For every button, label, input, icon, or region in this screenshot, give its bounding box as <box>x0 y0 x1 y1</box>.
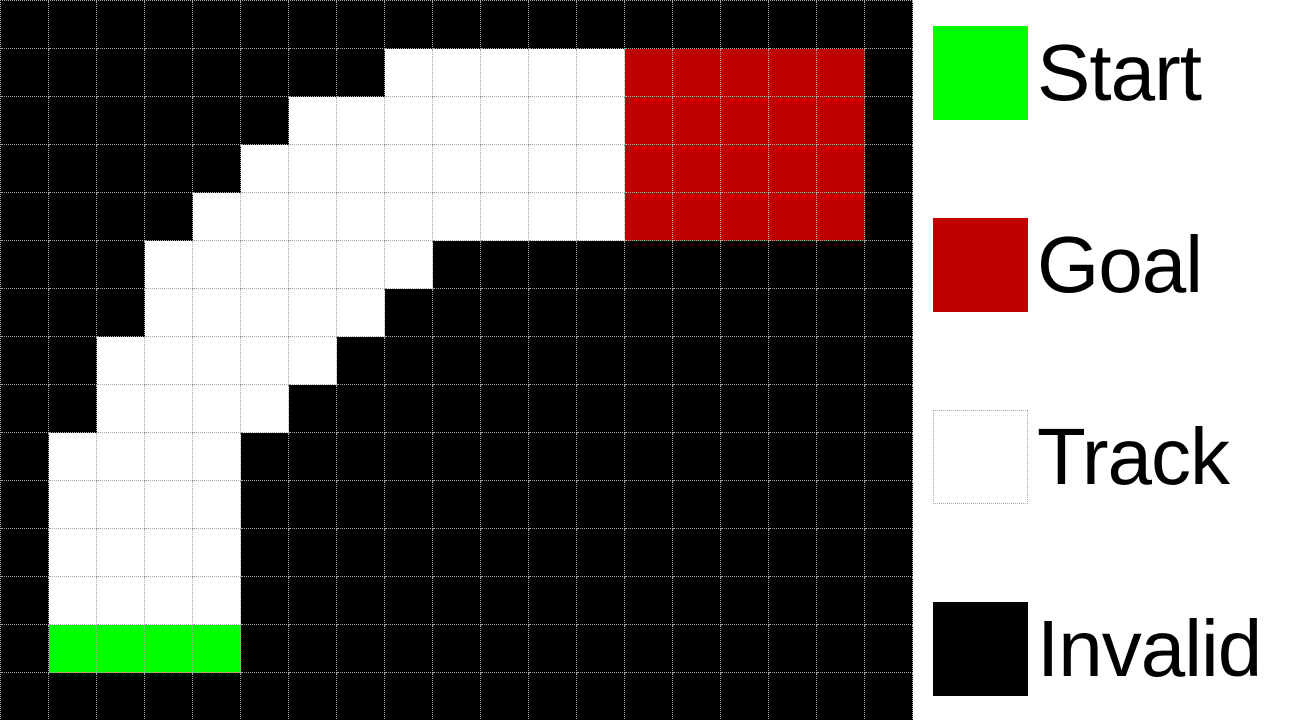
cell-track <box>49 481 97 529</box>
cell-goal <box>625 49 673 97</box>
cell-goal <box>673 97 721 145</box>
cell-invalid <box>673 481 721 529</box>
cell-invalid <box>529 625 577 673</box>
cell-invalid <box>1 673 49 720</box>
cell-invalid <box>865 193 913 241</box>
cell-invalid <box>817 481 865 529</box>
cell-goal <box>673 193 721 241</box>
cell-invalid <box>481 1 529 49</box>
cell-goal <box>769 193 817 241</box>
cell-invalid <box>49 385 97 433</box>
cell-invalid <box>337 481 385 529</box>
legend-label-goal: Goal <box>1037 225 1202 305</box>
cell-track <box>241 385 289 433</box>
cell-track <box>97 337 145 385</box>
cell-track <box>337 97 385 145</box>
cell-track <box>241 241 289 289</box>
cell-invalid <box>865 97 913 145</box>
cell-invalid <box>49 337 97 385</box>
cell-invalid <box>385 433 433 481</box>
cell-invalid <box>817 433 865 481</box>
cell-goal <box>625 193 673 241</box>
cell-invalid <box>673 1 721 49</box>
cell-invalid <box>337 49 385 97</box>
cell-track <box>241 337 289 385</box>
cell-invalid <box>241 625 289 673</box>
cell-invalid <box>817 289 865 337</box>
cell-invalid <box>625 577 673 625</box>
cell-invalid <box>481 337 529 385</box>
cell-invalid <box>481 481 529 529</box>
cell-track <box>49 577 97 625</box>
cell-invalid <box>433 625 481 673</box>
cell-invalid <box>385 1 433 49</box>
cell-track <box>145 529 193 577</box>
cell-track <box>241 145 289 193</box>
cell-invalid <box>97 289 145 337</box>
cell-track <box>481 193 529 241</box>
track-swatch <box>933 410 1028 504</box>
cell-track <box>193 577 241 625</box>
cell-invalid <box>385 529 433 577</box>
cell-track <box>529 145 577 193</box>
cell-invalid <box>529 577 577 625</box>
cell-goal <box>817 49 865 97</box>
cell-invalid <box>529 529 577 577</box>
cell-track <box>193 385 241 433</box>
cell-track <box>385 145 433 193</box>
cell-track <box>433 49 481 97</box>
cell-track <box>289 289 337 337</box>
cell-invalid <box>385 673 433 720</box>
cell-invalid <box>673 577 721 625</box>
cell-track <box>289 193 337 241</box>
cell-invalid <box>529 1 577 49</box>
cell-invalid <box>529 385 577 433</box>
cell-invalid <box>769 433 817 481</box>
cell-invalid <box>481 241 529 289</box>
cell-invalid <box>673 385 721 433</box>
cell-invalid <box>49 193 97 241</box>
cell-invalid <box>433 241 481 289</box>
cell-invalid <box>625 337 673 385</box>
cell-invalid <box>673 529 721 577</box>
invalid-swatch <box>933 602 1028 696</box>
cell-track <box>97 385 145 433</box>
cell-invalid <box>337 385 385 433</box>
cell-invalid <box>769 1 817 49</box>
cell-track <box>145 337 193 385</box>
cell-invalid <box>241 481 289 529</box>
cell-track <box>433 97 481 145</box>
legend-label-invalid: Invalid <box>1037 609 1261 689</box>
cell-track <box>481 145 529 193</box>
legend-item-track: Track <box>933 410 1229 504</box>
cell-invalid <box>721 433 769 481</box>
cell-invalid <box>1 241 49 289</box>
cell-invalid <box>385 481 433 529</box>
goal-swatch <box>933 218 1028 312</box>
cell-invalid <box>625 529 673 577</box>
cell-invalid <box>1 97 49 145</box>
cell-invalid <box>97 49 145 97</box>
cell-invalid <box>865 673 913 720</box>
cell-goal <box>721 193 769 241</box>
cell-invalid <box>721 577 769 625</box>
cell-track <box>337 241 385 289</box>
cell-invalid <box>625 1 673 49</box>
cell-invalid <box>193 673 241 720</box>
cell-track <box>97 433 145 481</box>
cell-invalid <box>769 577 817 625</box>
cell-invalid <box>865 337 913 385</box>
cell-invalid <box>385 385 433 433</box>
cell-invalid <box>673 625 721 673</box>
cell-invalid <box>97 1 145 49</box>
legend-item-start: Start <box>933 26 1201 120</box>
cell-invalid <box>1 1 49 49</box>
cell-invalid <box>241 577 289 625</box>
cell-goal <box>625 97 673 145</box>
cell-invalid <box>145 97 193 145</box>
cell-invalid <box>817 385 865 433</box>
cell-invalid <box>625 625 673 673</box>
cell-invalid <box>241 49 289 97</box>
cell-invalid <box>865 481 913 529</box>
cell-invalid <box>385 625 433 673</box>
cell-invalid <box>577 577 625 625</box>
cell-invalid <box>769 289 817 337</box>
cell-invalid <box>289 1 337 49</box>
cell-invalid <box>481 577 529 625</box>
cell-track <box>529 193 577 241</box>
cell-invalid <box>1 433 49 481</box>
cell-invalid <box>481 673 529 720</box>
legend: Start Goal Track Invalid <box>913 0 1302 720</box>
cell-invalid <box>49 1 97 49</box>
cell-invalid <box>577 433 625 481</box>
cell-invalid <box>817 241 865 289</box>
cell-invalid <box>337 337 385 385</box>
cell-track <box>385 193 433 241</box>
cell-invalid <box>433 577 481 625</box>
cell-invalid <box>529 673 577 720</box>
cell-invalid <box>145 673 193 720</box>
cell-track <box>49 529 97 577</box>
cell-track <box>193 241 241 289</box>
cell-invalid <box>721 481 769 529</box>
cell-invalid <box>145 1 193 49</box>
cell-invalid <box>49 673 97 720</box>
cell-track <box>49 433 97 481</box>
cell-invalid <box>289 673 337 720</box>
cell-invalid <box>433 289 481 337</box>
cell-track <box>577 145 625 193</box>
cell-track <box>145 289 193 337</box>
cell-invalid <box>625 433 673 481</box>
cell-invalid <box>289 529 337 577</box>
cell-track <box>193 529 241 577</box>
cell-track <box>385 97 433 145</box>
cell-track <box>145 241 193 289</box>
cell-track <box>97 481 145 529</box>
cell-start <box>145 625 193 673</box>
cell-invalid <box>289 481 337 529</box>
cell-invalid <box>241 1 289 49</box>
cell-invalid <box>769 529 817 577</box>
legend-item-invalid: Invalid <box>933 602 1261 696</box>
cell-invalid <box>433 529 481 577</box>
cell-invalid <box>49 289 97 337</box>
cell-goal <box>673 49 721 97</box>
cell-invalid <box>721 241 769 289</box>
cell-invalid <box>865 241 913 289</box>
cell-invalid <box>577 385 625 433</box>
cell-invalid <box>577 625 625 673</box>
cell-goal <box>769 97 817 145</box>
cell-invalid <box>577 481 625 529</box>
cell-invalid <box>481 385 529 433</box>
cell-goal <box>721 145 769 193</box>
cell-invalid <box>769 625 817 673</box>
cell-invalid <box>289 433 337 481</box>
cell-invalid <box>769 481 817 529</box>
cell-track <box>337 289 385 337</box>
cell-invalid <box>817 625 865 673</box>
cell-invalid <box>97 241 145 289</box>
cell-start <box>49 625 97 673</box>
cell-track <box>97 577 145 625</box>
cell-invalid <box>337 625 385 673</box>
cell-invalid <box>193 145 241 193</box>
cell-invalid <box>193 49 241 97</box>
cell-invalid <box>433 1 481 49</box>
cell-invalid <box>337 433 385 481</box>
cell-invalid <box>577 673 625 720</box>
cell-goal <box>817 97 865 145</box>
cell-track <box>481 97 529 145</box>
cell-invalid <box>721 337 769 385</box>
cell-goal <box>769 49 817 97</box>
cell-invalid <box>1 529 49 577</box>
cell-invalid <box>1 481 49 529</box>
cell-invalid <box>721 673 769 720</box>
cell-invalid <box>817 1 865 49</box>
cell-invalid <box>529 337 577 385</box>
cell-invalid <box>1 193 49 241</box>
cell-invalid <box>769 241 817 289</box>
cell-goal <box>817 193 865 241</box>
cell-goal <box>769 145 817 193</box>
cell-track <box>193 289 241 337</box>
cell-goal <box>673 145 721 193</box>
cell-invalid <box>625 385 673 433</box>
cell-invalid <box>241 97 289 145</box>
cell-invalid <box>865 529 913 577</box>
cell-invalid <box>433 433 481 481</box>
cell-invalid <box>577 289 625 337</box>
cell-track <box>385 241 433 289</box>
legend-label-track: Track <box>1037 417 1229 497</box>
cell-invalid <box>1 577 49 625</box>
cell-track <box>145 481 193 529</box>
cell-invalid <box>337 577 385 625</box>
cell-track <box>529 49 577 97</box>
cell-invalid <box>289 577 337 625</box>
cell-invalid <box>673 433 721 481</box>
cell-invalid <box>481 289 529 337</box>
cell-goal <box>721 97 769 145</box>
cell-invalid <box>289 625 337 673</box>
cell-invalid <box>193 1 241 49</box>
cell-invalid <box>97 97 145 145</box>
cell-invalid <box>289 49 337 97</box>
cell-invalid <box>865 49 913 97</box>
cell-invalid <box>337 673 385 720</box>
cell-track <box>577 97 625 145</box>
cell-invalid <box>1 337 49 385</box>
cell-invalid <box>769 385 817 433</box>
cell-track <box>481 49 529 97</box>
racetrack-figure: Start Goal Track Invalid <box>0 0 1302 720</box>
cell-invalid <box>1 289 49 337</box>
cell-track <box>193 433 241 481</box>
legend-item-goal: Goal <box>933 218 1202 312</box>
cell-track <box>241 193 289 241</box>
cell-invalid <box>481 433 529 481</box>
cell-goal <box>817 145 865 193</box>
cell-invalid <box>241 433 289 481</box>
racetrack-grid <box>0 0 913 720</box>
cell-invalid <box>865 1 913 49</box>
cell-start <box>97 625 145 673</box>
cell-invalid <box>1 625 49 673</box>
cell-invalid <box>385 577 433 625</box>
cell-track <box>337 193 385 241</box>
cell-invalid <box>577 337 625 385</box>
cell-invalid <box>721 625 769 673</box>
cell-track <box>289 337 337 385</box>
cell-invalid <box>529 481 577 529</box>
legend-label-start: Start <box>1037 33 1201 113</box>
cell-invalid <box>865 577 913 625</box>
cell-track <box>529 97 577 145</box>
cell-track <box>289 145 337 193</box>
cell-track <box>145 385 193 433</box>
cell-invalid <box>529 241 577 289</box>
cell-invalid <box>1 145 49 193</box>
cell-invalid <box>865 289 913 337</box>
cell-invalid <box>529 289 577 337</box>
cell-invalid <box>817 577 865 625</box>
cell-start <box>193 625 241 673</box>
cell-invalid <box>289 385 337 433</box>
cell-invalid <box>433 481 481 529</box>
cell-invalid <box>49 145 97 193</box>
cell-invalid <box>241 529 289 577</box>
cell-track <box>385 49 433 97</box>
cell-invalid <box>625 241 673 289</box>
cell-invalid <box>625 673 673 720</box>
cell-invalid <box>1 385 49 433</box>
cell-invalid <box>865 385 913 433</box>
cell-invalid <box>49 241 97 289</box>
cell-invalid <box>577 1 625 49</box>
cell-invalid <box>577 241 625 289</box>
cell-invalid <box>817 529 865 577</box>
cell-invalid <box>481 625 529 673</box>
cell-invalid <box>673 673 721 720</box>
cell-invalid <box>673 337 721 385</box>
cell-track <box>577 193 625 241</box>
cell-invalid <box>337 1 385 49</box>
cell-track <box>337 145 385 193</box>
cell-invalid <box>769 673 817 720</box>
cell-invalid <box>385 289 433 337</box>
cell-invalid <box>529 433 577 481</box>
cell-invalid <box>673 289 721 337</box>
cell-invalid <box>817 337 865 385</box>
cell-goal <box>721 49 769 97</box>
cell-track <box>577 49 625 97</box>
cell-invalid <box>145 145 193 193</box>
cell-invalid <box>433 385 481 433</box>
cell-invalid <box>433 337 481 385</box>
cell-invalid <box>721 529 769 577</box>
cell-invalid <box>385 337 433 385</box>
cell-invalid <box>721 1 769 49</box>
cell-invalid <box>625 289 673 337</box>
cell-invalid <box>193 97 241 145</box>
cell-invalid <box>817 673 865 720</box>
cell-invalid <box>721 385 769 433</box>
cell-track <box>433 145 481 193</box>
cell-invalid <box>865 145 913 193</box>
cell-track <box>433 193 481 241</box>
cell-track <box>241 289 289 337</box>
cell-invalid <box>865 625 913 673</box>
cell-track <box>289 97 337 145</box>
cell-track <box>193 337 241 385</box>
cell-invalid <box>433 673 481 720</box>
cell-invalid <box>673 241 721 289</box>
cell-invalid <box>145 49 193 97</box>
cell-invalid <box>625 481 673 529</box>
cell-invalid <box>97 193 145 241</box>
cell-invalid <box>337 529 385 577</box>
cell-invalid <box>49 49 97 97</box>
cell-invalid <box>241 673 289 720</box>
cell-invalid <box>721 289 769 337</box>
cell-track <box>97 529 145 577</box>
cell-invalid <box>769 337 817 385</box>
cell-invalid <box>97 145 145 193</box>
cell-track <box>145 577 193 625</box>
cell-invalid <box>1 49 49 97</box>
cell-invalid <box>577 529 625 577</box>
cell-invalid <box>145 193 193 241</box>
cell-goal <box>625 145 673 193</box>
cell-invalid <box>865 433 913 481</box>
cell-invalid <box>97 673 145 720</box>
cell-invalid <box>481 529 529 577</box>
cell-invalid <box>49 97 97 145</box>
start-swatch <box>933 26 1028 120</box>
cell-track <box>289 241 337 289</box>
cell-track <box>193 193 241 241</box>
cell-track <box>145 433 193 481</box>
cell-track <box>193 481 241 529</box>
